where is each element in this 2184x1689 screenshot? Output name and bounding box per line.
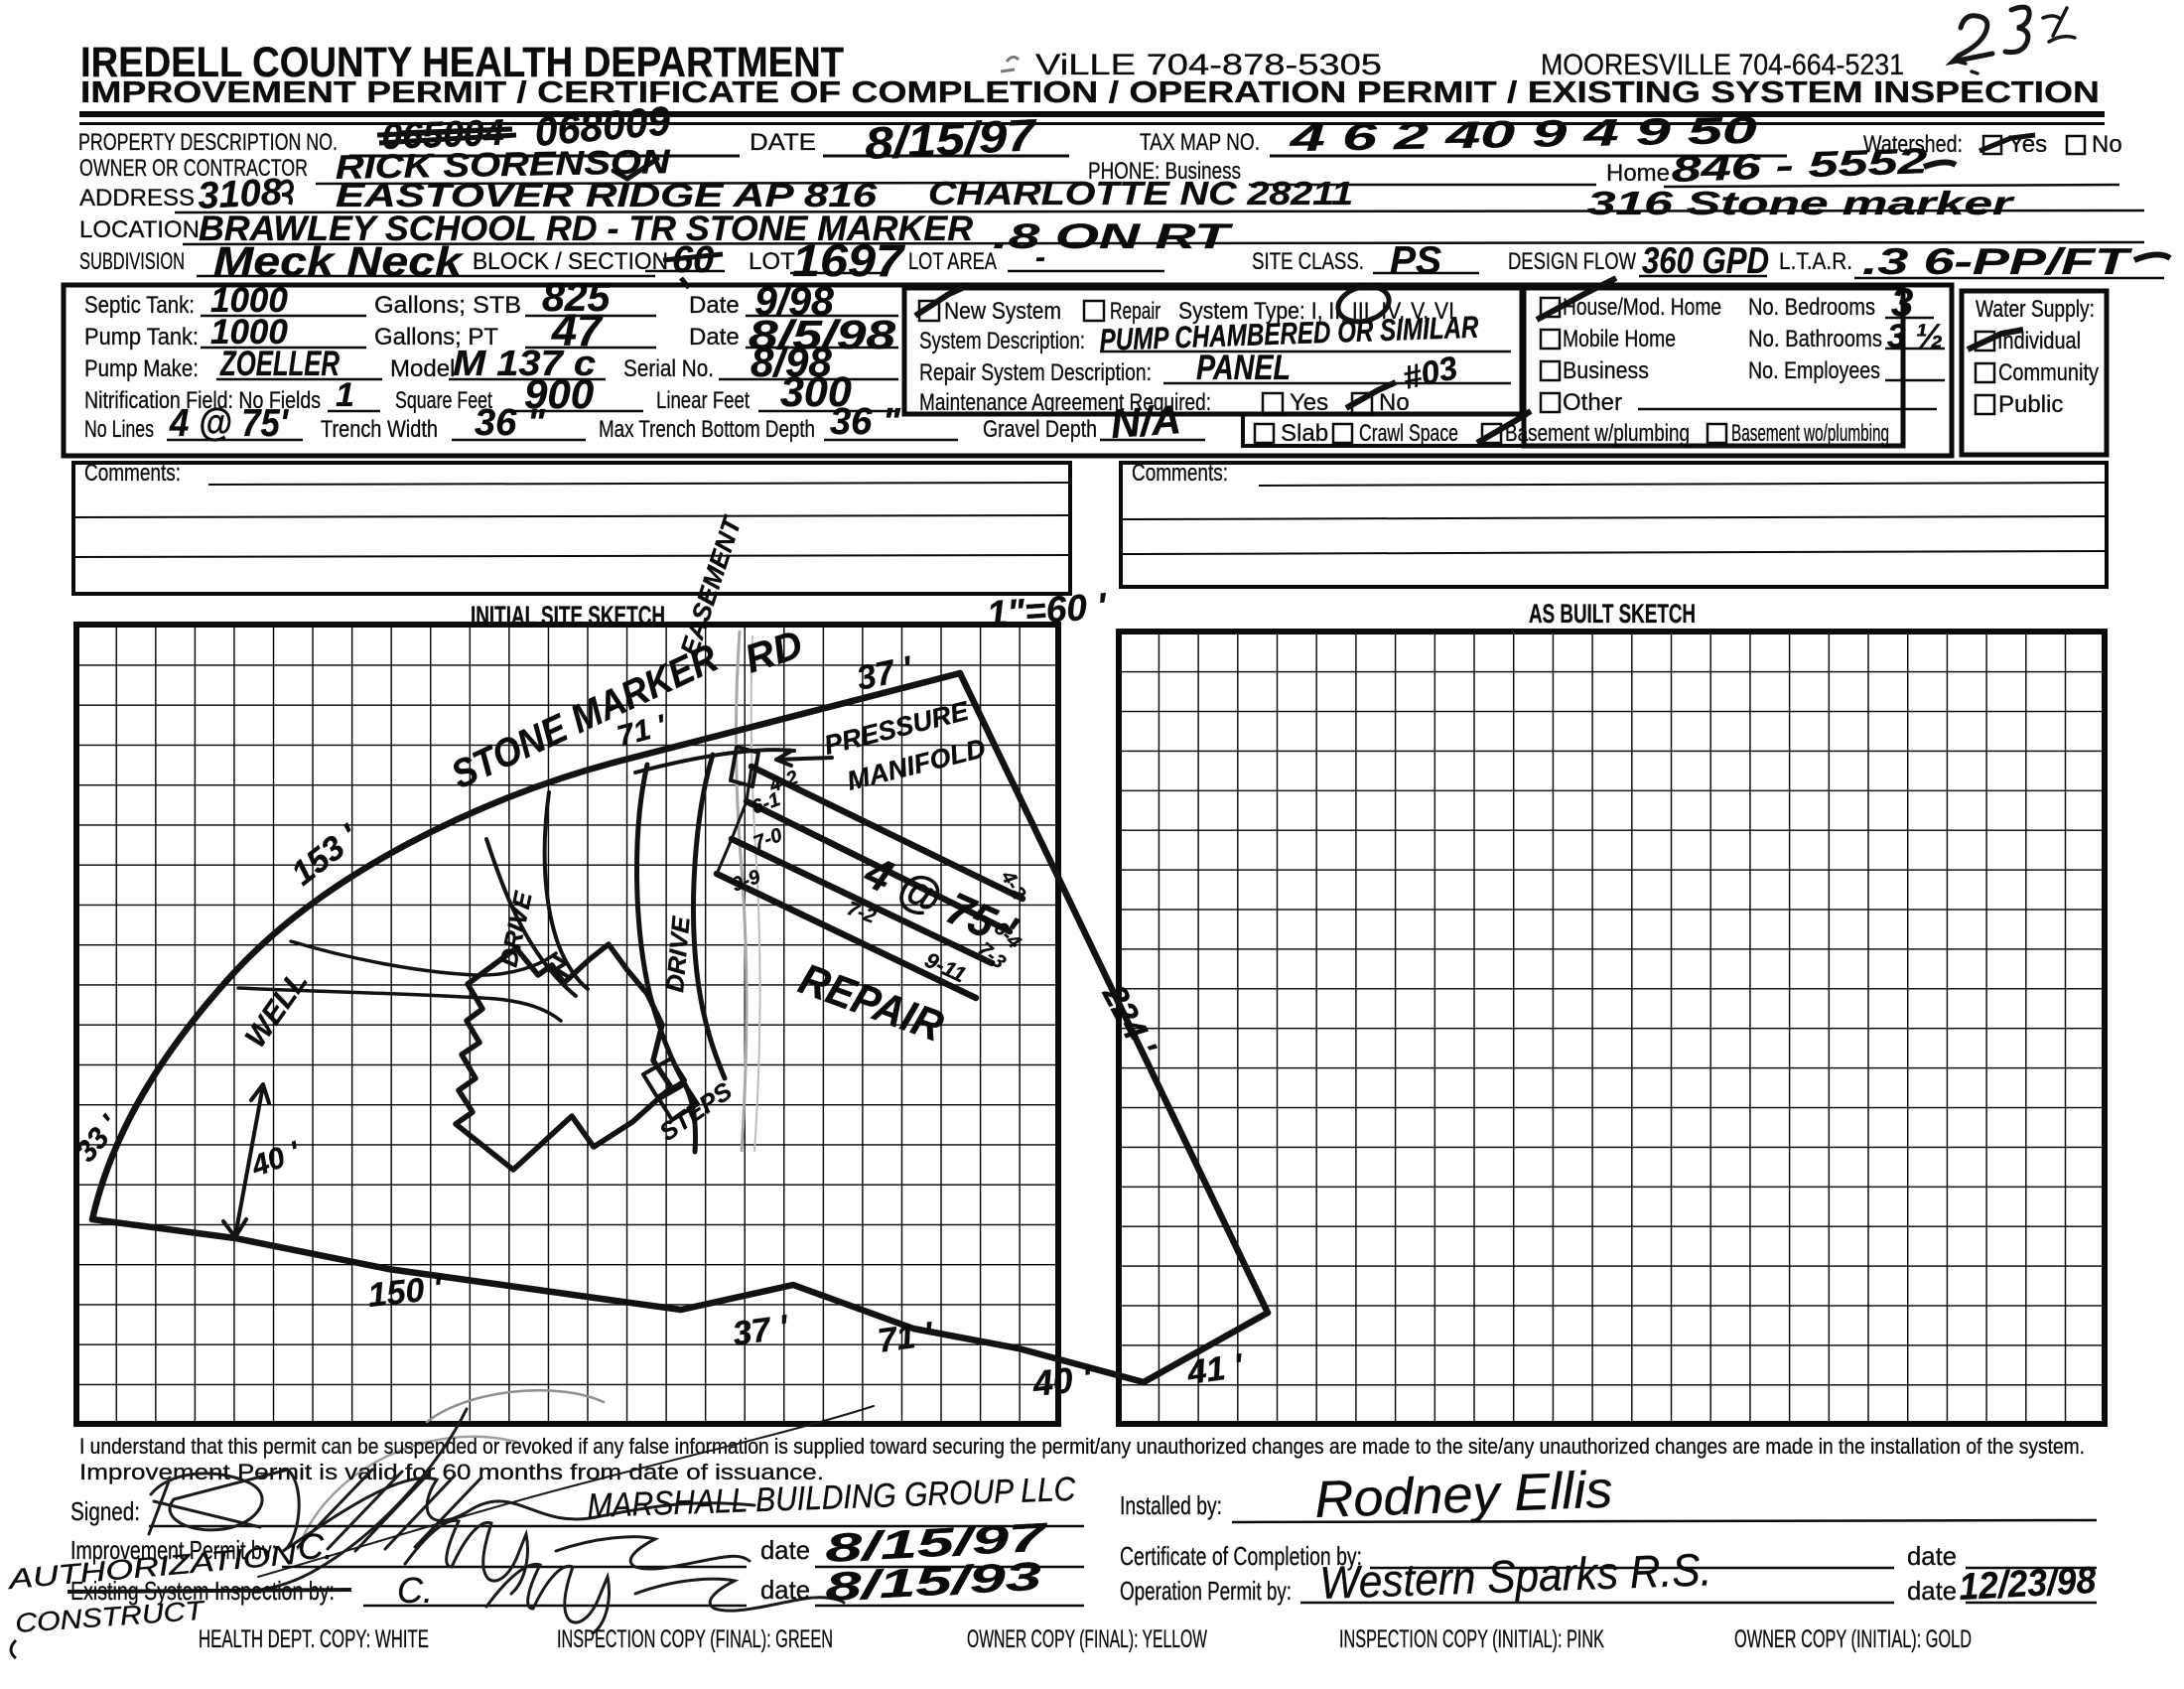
svg-text:PANEL: PANEL — [1196, 349, 1291, 387]
svg-text:Public: Public — [1998, 391, 2063, 418]
svg-text:Crawl Space: Crawl Space — [1359, 420, 1458, 447]
svg-text:No. Bedrooms: No. Bedrooms — [1748, 294, 1875, 321]
svg-text:Basement wo/plumbing: Basement wo/plumbing — [1731, 420, 1889, 447]
svg-text:Pump Make:: Pump Make: — [84, 355, 199, 382]
svg-text:41 ': 41 ' — [1184, 1346, 1247, 1392]
svg-text:1: 1 — [336, 376, 354, 414]
svg-text:IMPROVEMENT PERMIT / CERTIFICA: IMPROVEMENT PERMIT / CERTIFICATE OF COMP… — [80, 74, 2100, 109]
svg-text:Community: Community — [1998, 359, 2099, 386]
svg-text:12/23/98: 12/23/98 — [1958, 1560, 2098, 1609]
svg-text:No. Bathrooms: No. Bathrooms — [1748, 326, 1882, 352]
svg-text:Max Trench Bottom Depth: Max Trench Bottom Depth — [599, 416, 815, 443]
svg-text:New System: New System — [944, 298, 1061, 325]
svg-text:Business: Business — [1563, 357, 1649, 384]
svg-text:LOCATION: LOCATION — [79, 216, 200, 243]
svg-text:Linear Feet: Linear Feet — [656, 387, 750, 414]
svg-text:Home: Home — [1606, 160, 1670, 187]
svg-text:House/Mod. Home: House/Mod. Home — [1563, 294, 1721, 321]
svg-text:-: - — [1035, 241, 1045, 274]
svg-text:No: No — [2092, 131, 2122, 158]
svg-text:Other: Other — [1563, 389, 1622, 416]
svg-text:LOT AREA: LOT AREA — [908, 248, 997, 275]
svg-text:date: date — [1907, 1576, 1957, 1606]
svg-text:37 ': 37 ' — [731, 1308, 792, 1353]
svg-text:Trench Width: Trench Width — [321, 416, 438, 443]
svg-text:36 ": 36 " — [475, 402, 546, 444]
svg-text:INSPECTION COPY (FINAL): GREEN: INSPECTION COPY (FINAL): GREEN — [557, 1625, 833, 1653]
svg-text:AS BUILT SKETCH: AS BUILT SKETCH — [1529, 599, 1696, 629]
svg-text:Repair System Description:: Repair System Description: — [919, 359, 1152, 386]
svg-text:SITE CLASS.: SITE CLASS. — [1252, 248, 1364, 275]
svg-text:PS: PS — [1390, 239, 1441, 282]
svg-text:C.: C. — [397, 1570, 433, 1611]
svg-text:HEALTH DEPT. COPY: WHITE: HEALTH DEPT. COPY: WHITE — [199, 1625, 429, 1653]
svg-text:.3 6-PP/FT: .3 6-PP/FT — [1862, 241, 2133, 282]
svg-text:OWNER COPY (INITIAL): GOLD: OWNER COPY (INITIAL): GOLD — [1734, 1625, 1972, 1653]
svg-text:Comments:: Comments: — [84, 460, 181, 487]
svg-text:Slab: Slab — [1281, 420, 1328, 447]
svg-text:Mobile Home: Mobile Home — [1563, 326, 1676, 352]
svg-text:Yes: Yes — [1290, 389, 1328, 416]
svg-text:360 GPD: 360 GPD — [1642, 240, 1769, 281]
svg-text:OWNER COPY (FINAL): YELLOW: OWNER COPY (FINAL): YELLOW — [967, 1625, 1207, 1653]
svg-text:System Description:: System Description: — [919, 328, 1085, 354]
svg-text:Comments:: Comments: — [1132, 460, 1228, 487]
svg-text:4 @ 75': 4 @ 75' — [169, 402, 289, 445]
svg-text:Individual: Individual — [1997, 328, 2081, 354]
svg-text:LOT: LOT — [749, 248, 795, 275]
svg-text:SUBDIVISION: SUBDIVISION — [79, 248, 185, 275]
svg-text:Date: Date — [689, 292, 740, 319]
svg-text:Water Supply:: Water Supply: — [1976, 296, 2095, 323]
svg-text:No: No — [1379, 389, 1410, 416]
svg-text:Gallons; STB: Gallons; STB — [374, 292, 521, 319]
svg-text:BLOCK / SECTION: BLOCK / SECTION — [473, 248, 668, 275]
svg-text:PROPERTY DESCRIPTION NO.: PROPERTY DESCRIPTION NO. — [78, 129, 338, 156]
svg-text:ZOELLER: ZOELLER — [219, 345, 340, 383]
svg-text:Signed:: Signed: — [70, 1496, 140, 1526]
svg-text:L.T.A.R.: L.T.A.R. — [1779, 248, 1852, 275]
svg-text:150 ': 150 ' — [366, 1269, 446, 1315]
svg-text:Date: Date — [689, 324, 740, 351]
svg-text:No Lines: No Lines — [84, 416, 154, 443]
svg-text:316 Stone marker: 316 Stone marker — [1587, 185, 2015, 221]
svg-text:Basement w/plumbing: Basement w/plumbing — [1505, 420, 1690, 447]
svg-text:Pump Tank:: Pump Tank: — [84, 324, 199, 351]
svg-text:36 ": 36 " — [830, 401, 901, 443]
svg-text:71 ': 71 ' — [876, 1315, 937, 1360]
svg-text:DATE: DATE — [750, 129, 816, 156]
svg-text:Gravel Depth: Gravel Depth — [983, 416, 1097, 443]
svg-text:DESIGN FLOW: DESIGN FLOW — [1508, 248, 1636, 275]
svg-text:Meck Neck: Meck Neck — [213, 238, 465, 284]
svg-text:Serial No.: Serial No. — [623, 355, 714, 382]
svg-text:CHARLOTTE NC 28211: CHARLOTTE NC 28211 — [928, 175, 1353, 211]
svg-text:8/15/97: 8/15/97 — [864, 109, 1039, 169]
svg-text:date: date — [760, 1575, 810, 1605]
svg-text:Operation Permit by:: Operation Permit by: — [1120, 1576, 1292, 1606]
svg-text:ADDRESS: ADDRESS — [79, 185, 195, 211]
svg-text:40 ': 40 ' — [1030, 1357, 1095, 1404]
svg-text:EASTOVER RIDGE AP 816: EASTOVER RIDGE AP 816 — [336, 177, 878, 213]
svg-text:date: date — [1907, 1541, 1957, 1571]
svg-text:.8 ON RT: .8 ON RT — [993, 217, 1233, 256]
svg-text:Model: Model — [390, 355, 455, 382]
svg-text:I understand that this permit: I understand that this permit can be sus… — [79, 1434, 2085, 1459]
svg-text:INSPECTION COPY (INITIAL): PIN: INSPECTION COPY (INITIAL): PINK — [1339, 1625, 1604, 1653]
svg-text:Rodney Ellis: Rodney Ellis — [1313, 1462, 1613, 1529]
svg-text:Maintenance Agreement Required: Maintenance Agreement Required: — [919, 389, 1211, 416]
svg-text:Installed by:: Installed by: — [1120, 1490, 1222, 1520]
svg-text:3 ½: 3 ½ — [1887, 318, 1944, 355]
svg-text:C.: C. — [298, 1526, 334, 1567]
svg-text:No. Employees: No. Employees — [1748, 357, 1880, 384]
svg-text:Septic Tank:: Septic Tank: — [84, 292, 195, 319]
svg-text:TAX MAP NO.: TAX MAP NO. — [1140, 129, 1260, 156]
svg-text:date: date — [760, 1535, 810, 1565]
